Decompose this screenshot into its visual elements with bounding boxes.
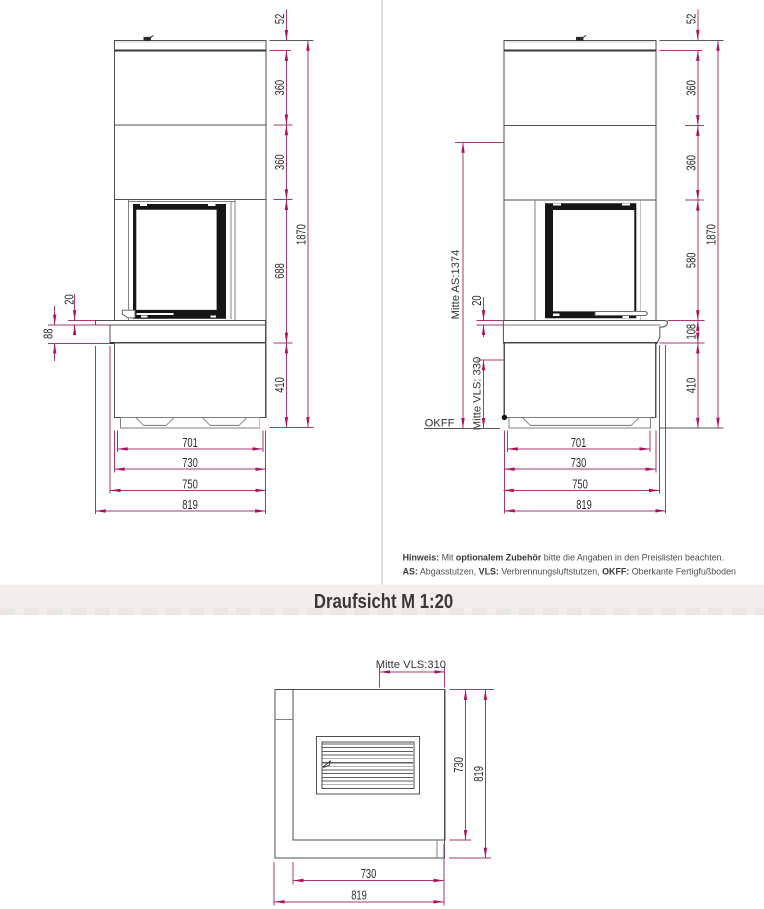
- svg-text:701: 701: [182, 437, 198, 451]
- svg-text:819: 819: [182, 499, 198, 513]
- svg-text:701: 701: [571, 437, 587, 451]
- svg-text:360: 360: [274, 80, 288, 96]
- svg-text:360: 360: [685, 80, 699, 96]
- svg-text:819: 819: [576, 498, 592, 512]
- svg-text:20: 20: [63, 294, 77, 304]
- svg-text:360: 360: [685, 155, 699, 171]
- svg-text:410: 410: [685, 378, 699, 394]
- svg-text:750: 750: [572, 478, 588, 492]
- svg-text:52: 52: [274, 14, 288, 24]
- svg-text:Mitte VLS: 330: Mitte VLS: 330: [472, 357, 484, 430]
- svg-text:OKFF: OKFF: [425, 417, 455, 429]
- svg-text:1870: 1870: [295, 224, 309, 245]
- svg-text:730: 730: [571, 457, 587, 471]
- svg-text:360: 360: [274, 154, 288, 170]
- svg-text:108: 108: [685, 324, 699, 340]
- svg-text:410: 410: [274, 377, 288, 393]
- svg-text:730: 730: [453, 757, 467, 773]
- svg-text:730: 730: [361, 868, 377, 882]
- svg-text:20: 20: [471, 295, 485, 305]
- svg-text:Hinweis: Mit optionalem Zubehö: Hinweis: Mit optionalem Zubehör bitte di…: [403, 552, 724, 562]
- svg-text:819: 819: [473, 766, 487, 782]
- svg-text:Mitte AS:1374: Mitte AS:1374: [450, 250, 462, 320]
- svg-text:730: 730: [182, 457, 198, 471]
- svg-text:750: 750: [182, 478, 198, 492]
- svg-text:688: 688: [274, 263, 288, 279]
- svg-text:88: 88: [42, 329, 56, 339]
- svg-text:580: 580: [685, 253, 699, 269]
- svg-text:Draufsicht M 1:20: Draufsicht M 1:20: [314, 590, 453, 613]
- svg-text:819: 819: [351, 889, 367, 903]
- svg-text:52: 52: [685, 14, 699, 24]
- svg-text:AS: Abgasstutzen, VLS: Verbren: AS: Abgasstutzen, VLS: Verbrennungslufts…: [403, 566, 736, 576]
- svg-text:Mitte VLS:310: Mitte VLS:310: [376, 659, 446, 671]
- svg-text:1870: 1870: [705, 224, 719, 245]
